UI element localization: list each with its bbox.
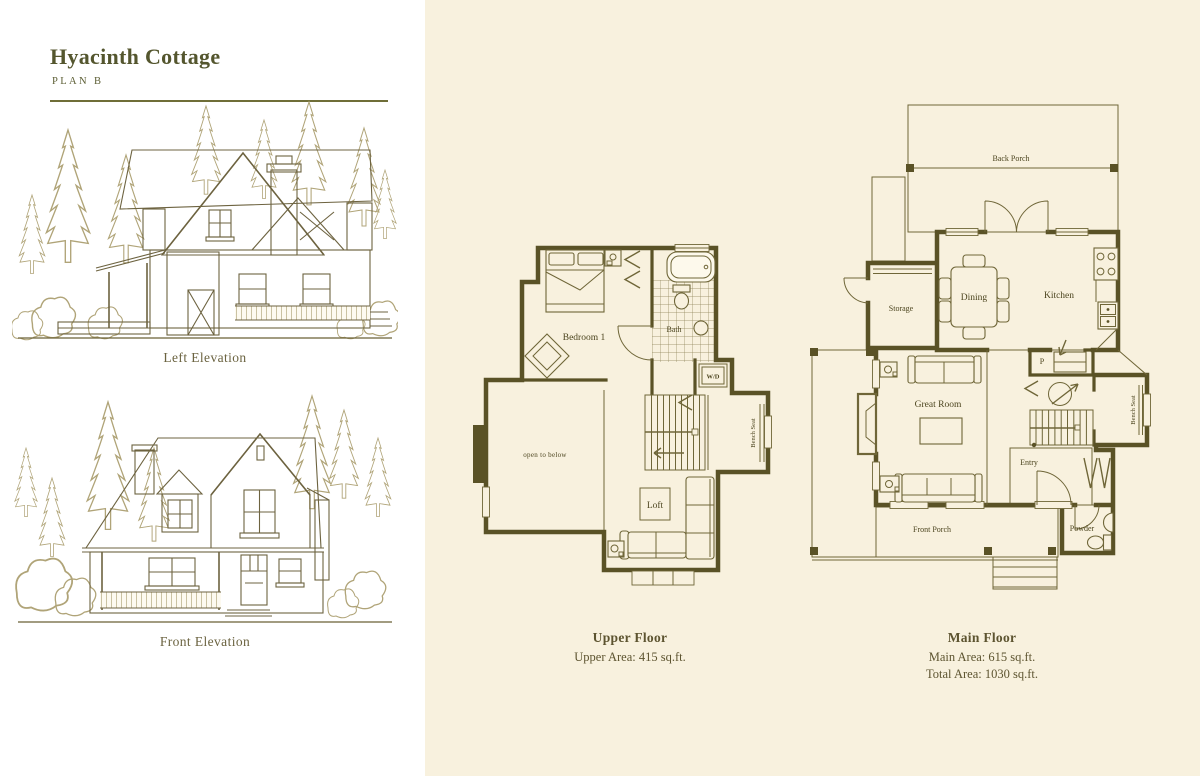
storage-room [844,269,932,303]
main-stairs [1030,383,1093,448]
front-elevation-figure [12,388,398,633]
left-elevation-label: Left Elevation [12,350,398,366]
upper-floor-figure: Bedroom 1 Bath W/D open to below Bench S… [468,240,790,597]
west-window [873,360,880,388]
room-label-back-porch: Back Porch [992,154,1029,163]
bathtub [667,252,715,282]
page-title: Hyacinth Cottage [50,44,220,70]
left-wall-window [483,487,490,517]
left-elevation-figure [12,100,398,349]
porch-post [906,164,914,172]
nightstand [605,250,621,266]
bedroom-door [618,326,652,360]
west-window [873,462,880,490]
sofa-bottom [895,474,982,502]
front-steps [993,557,1057,589]
entry-tile [1010,448,1092,505]
upper-floor-title: Upper Floor [510,630,750,646]
sofa-top [908,356,981,383]
bench-window [1144,394,1151,426]
room-label-storage: Storage [889,304,914,313]
main-floor-caption: Main Floor Main Area: 615 sq.ft. Total A… [862,630,1102,683]
bed [546,250,604,312]
upper-floor-area: Upper Area: 415 sq.ft. [510,649,750,666]
bench-window [765,416,772,448]
powder-sink [1104,513,1114,532]
upper-stairs [645,395,705,470]
room-label-wd: W/D [707,374,720,381]
left-elevation-drawing [12,100,398,344]
lamp-table [880,362,897,377]
closet-bifold-doors [1084,458,1110,488]
coffee-table [920,418,962,444]
fireplace [858,394,876,454]
upper-floor-caption: Upper Floor Upper Area: 415 sq.ft. [510,630,750,666]
porch-post [810,348,818,356]
porch-post [1110,164,1118,172]
loft-side-table [608,541,624,557]
room-label-bedroom: Bedroom 1 [563,333,606,343]
main-floor-area-total: Total Area: 1030 sq.ft. [862,666,1102,683]
main-floor-figure: Back Porch Storage Dining Kitchen P Grea… [798,98,1168,613]
front-door [1037,471,1071,505]
porch-post [810,547,818,555]
front-elevation-drawing [12,388,398,628]
room-label-bath: Bath [666,325,681,334]
french-doors [985,201,1048,232]
room-label-bench-seat: Bench Seat [750,418,757,448]
wd-door-mark [679,395,692,410]
powder-toilet [1088,535,1112,550]
bench-seat-lines [1139,385,1143,435]
front-elevation-house [82,434,329,622]
room-label-great-room: Great Room [915,400,962,410]
front-door-threshold [1035,502,1072,509]
stove [1094,248,1118,280]
room-label-kitchen: Kitchen [1044,291,1074,301]
brochure-page: Hyacinth Cottage PLAN B [0,0,1200,776]
bench-seat-lines [760,404,764,462]
lamp-table [880,476,899,492]
loft-sectional-sofa [620,477,714,559]
room-label-bench-seat: Bench Seat [1130,395,1137,425]
room-label-entry: Entry [1020,458,1038,467]
porch-post [1048,547,1056,555]
room-label-loft: Loft [647,500,664,511]
main-floor-title: Main Floor [862,630,1102,646]
side-deck [872,177,905,261]
background-pines [15,396,391,618]
plan-subtitle: PLAN B [52,76,103,87]
room-label-dining: Dining [961,293,988,303]
kitchen-sink [1098,302,1118,329]
porch-post [984,547,992,555]
room-label-front-porch: Front Porch [913,525,951,534]
background-pines [12,102,398,340]
closet-door-marks [625,251,640,288]
upper-floor-plan: Bedroom 1 Bath W/D open to below Bench S… [468,240,790,592]
loft-bay-window [632,571,694,585]
room-label-powder: Powder [1070,524,1095,533]
toilet [673,285,690,309]
room-label-pantry: P [1040,357,1045,366]
main-floor-plan: Back Porch Storage Dining Kitchen P Grea… [798,98,1168,608]
main-floor-area-main: Main Area: 615 sq.ft. [862,649,1102,666]
upper-floor-walls [486,248,768,570]
room-label-open-to-below: open to below [523,451,567,459]
chimney-block [473,425,488,483]
front-elevation-label: Front Elevation [12,634,398,650]
bath-sink [694,321,708,335]
